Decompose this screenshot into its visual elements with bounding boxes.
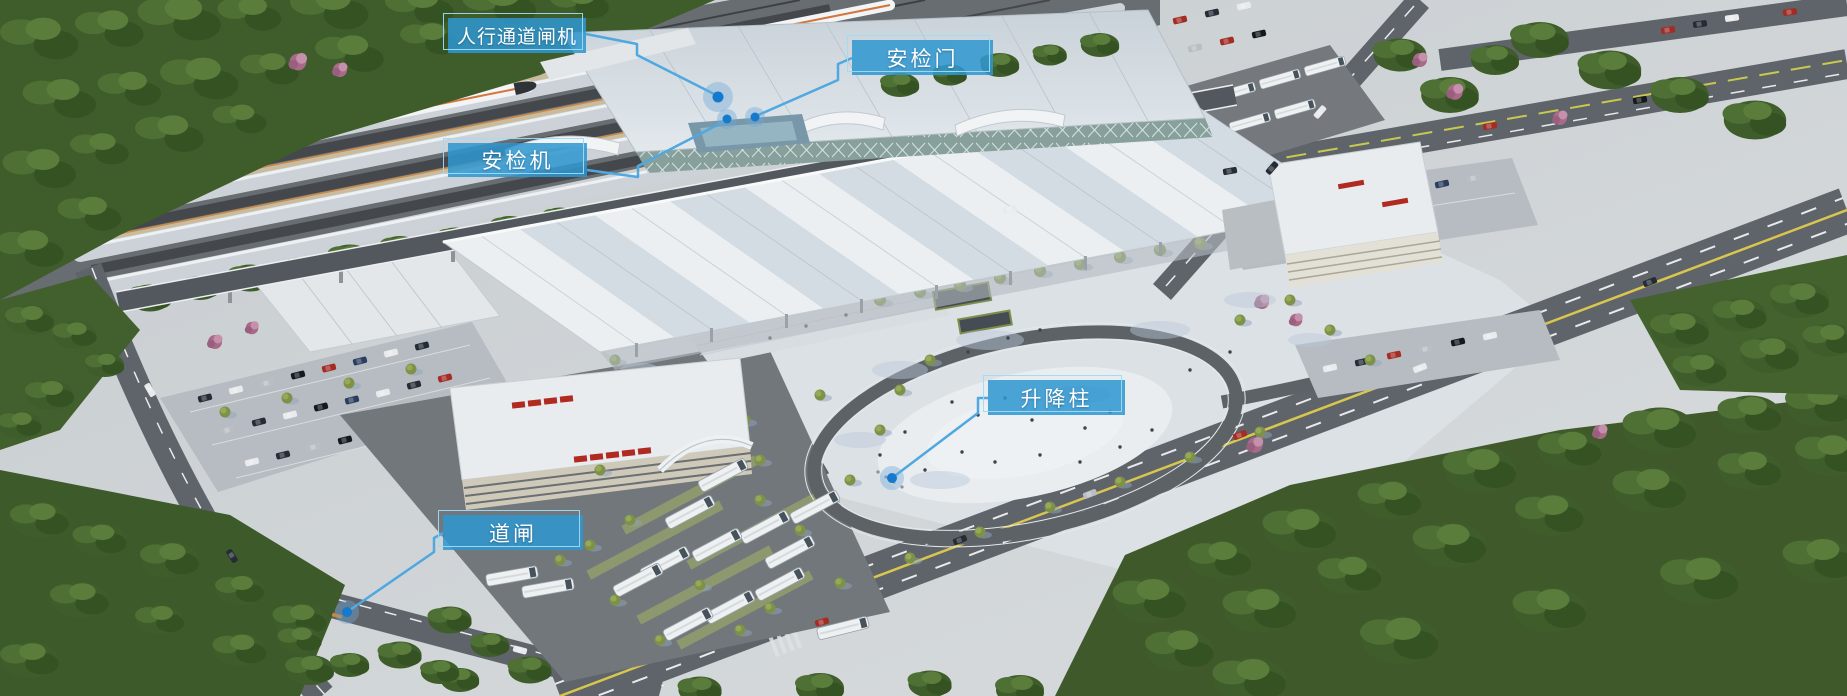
callout-lifting-bollard-label: 升降柱 [1021,383,1093,413]
marker-dot-pedestrian-channel-gate[interactable] [713,92,724,103]
marker-dot-lifting-bollard[interactable] [887,473,897,483]
callout-security-door[interactable]: 安检门 [852,40,993,75]
callout-barrier-gate[interactable]: 道闸 [443,515,583,550]
callout-barrier-gate-label: 道闸 [489,518,537,548]
callout-security-machine[interactable]: 安检机 [448,143,587,177]
marker-dot-security-door[interactable] [751,113,760,122]
callout-security-door-label: 安检门 [887,43,959,73]
callout-lifting-bollard[interactable]: 升降柱 [988,380,1125,415]
callout-pedestrian-channel-gate-label: 人行通道闸机 [457,22,577,49]
station-aerial-rendering: 人行通道闸机 安检门 安检机 升降柱 道闸 [0,0,1847,696]
marker-dot-security-machine[interactable] [723,115,732,124]
marker-dot-barrier-gate[interactable] [342,607,352,617]
callout-pedestrian-channel-gate[interactable]: 人行通道闸机 [448,18,586,53]
callout-security-machine-label: 安检机 [482,145,554,175]
rendered-scene [0,0,1847,696]
